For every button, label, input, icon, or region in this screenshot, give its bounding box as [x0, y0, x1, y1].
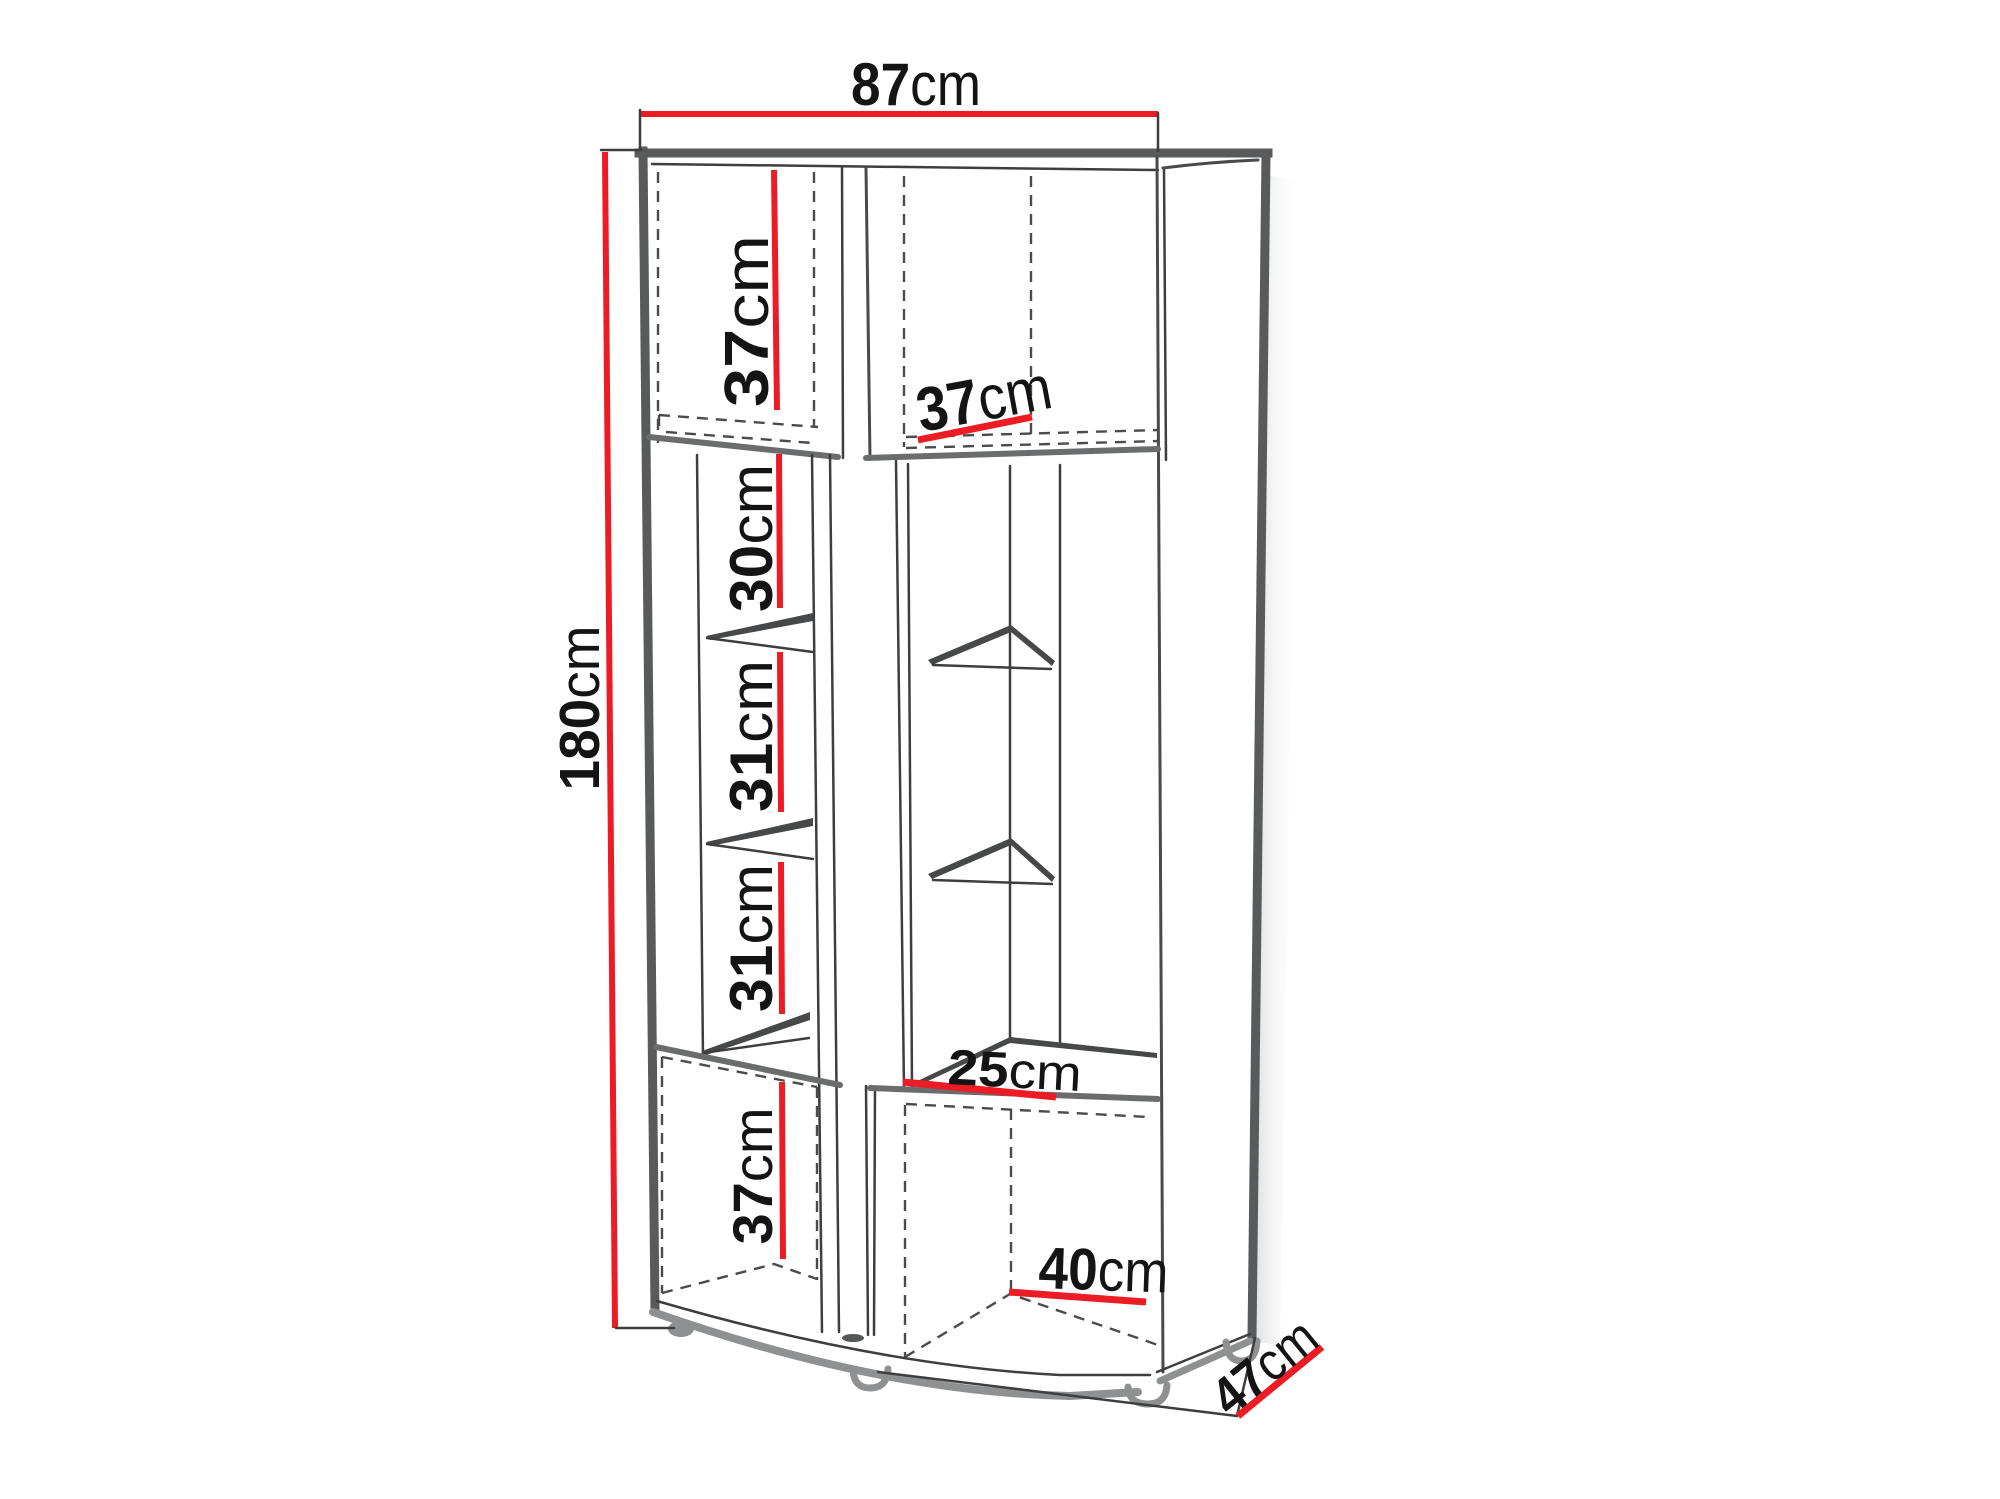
svg-text:37cm: 37cm [713, 235, 782, 407]
svg-text:40cm: 40cm [1038, 1235, 1170, 1305]
svg-text:30cm: 30cm [718, 464, 785, 612]
svg-text:87cm: 87cm [851, 51, 981, 118]
svg-text:37cm: 37cm [721, 1108, 784, 1245]
svg-text:25cm: 25cm [946, 1039, 1083, 1102]
svg-text:180cm: 180cm [548, 626, 612, 791]
svg-text:31cm: 31cm [718, 864, 785, 1012]
svg-text:31cm: 31cm [718, 660, 785, 812]
